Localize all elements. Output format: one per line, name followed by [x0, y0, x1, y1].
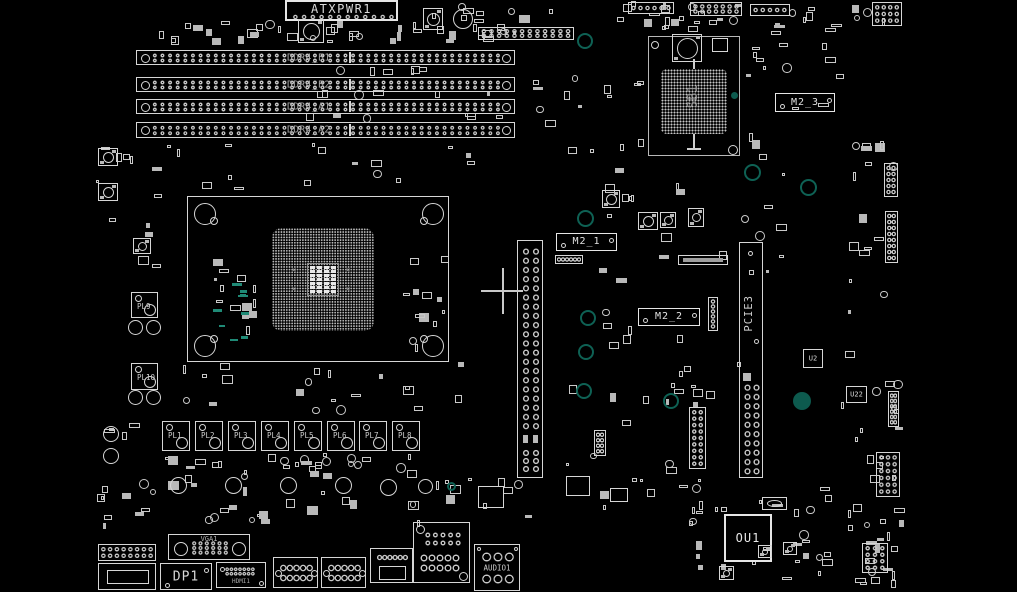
smd-component	[666, 467, 677, 474]
smd-component	[637, 81, 644, 85]
round-pad	[354, 461, 362, 469]
smd-component	[590, 149, 594, 153]
power-choke[interactable]: PL10	[131, 363, 158, 390]
pad	[437, 10, 441, 13]
smd-component	[396, 178, 401, 183]
smd-component	[177, 149, 180, 157]
smd-component	[693, 389, 703, 397]
power-choke[interactable]: PL7	[359, 421, 387, 451]
inductor[interactable]	[133, 238, 151, 254]
atx-power-connector[interactable]: ATXPWR1	[285, 0, 398, 21]
smd-component	[691, 385, 696, 388]
smd-component	[436, 481, 439, 490]
pin-header[interactable]	[872, 2, 902, 26]
power-choke[interactable]: PL1	[162, 421, 190, 451]
smd-component	[141, 508, 150, 512]
circle-pad	[827, 98, 832, 103]
smd-component	[694, 21, 700, 24]
round-inductor[interactable]	[146, 320, 161, 335]
circle-pad	[210, 217, 218, 225]
stacked-connector[interactable]	[370, 548, 413, 583]
smd-component	[315, 462, 322, 466]
smd-component	[458, 362, 464, 367]
smd-component	[746, 74, 751, 77]
inductor[interactable]	[638, 212, 658, 230]
pin-header[interactable]	[689, 407, 706, 469]
smd-component	[665, 17, 670, 26]
serial-connector[interactable]	[321, 557, 366, 588]
choke-label: PL1	[168, 432, 182, 440]
inductor[interactable]	[758, 545, 772, 558]
pad	[135, 249, 139, 252]
pin-header[interactable]	[888, 391, 899, 427]
circle-pad	[728, 145, 738, 155]
capacitor	[331, 266, 336, 269]
smd-component	[328, 370, 331, 378]
capacitor	[324, 270, 329, 273]
pin-header[interactable]	[478, 27, 574, 40]
pcie-slot-pcie3[interactable]: PCIE3	[739, 242, 763, 478]
chip-label: U22	[850, 391, 863, 398]
round-inductor[interactable]	[380, 479, 397, 496]
smd-component	[696, 511, 703, 514]
circle-pad	[754, 339, 759, 344]
smd-component	[853, 172, 856, 181]
smd-component	[209, 402, 217, 406]
capacitor	[317, 290, 322, 293]
smd-component	[891, 580, 896, 588]
smd-component	[764, 205, 773, 209]
smd-component	[145, 232, 153, 237]
circle-pad	[141, 81, 150, 90]
capacitor	[324, 290, 329, 293]
circle-pad	[359, 570, 366, 577]
pad	[640, 225, 644, 228]
mounting-hole	[800, 179, 817, 196]
round-pad	[854, 15, 860, 21]
circle-pad	[103, 152, 114, 163]
round-pad	[880, 291, 888, 299]
capacitor	[324, 282, 329, 285]
smd-component	[679, 485, 688, 488]
round-inductor[interactable]	[418, 479, 433, 494]
circle-pad	[692, 313, 697, 318]
smd-component	[880, 519, 886, 524]
smd-component	[603, 323, 612, 329]
smd-component	[782, 577, 792, 580]
pin-header[interactable]	[862, 543, 888, 573]
round-inductor[interactable]	[103, 426, 119, 442]
chip[interactable]: U2	[803, 349, 823, 368]
pad	[614, 192, 618, 195]
inductor[interactable]	[298, 19, 324, 43]
smd-component	[503, 487, 513, 494]
smd-component	[191, 483, 197, 487]
smd-component	[802, 540, 810, 543]
capacitor	[317, 282, 322, 285]
smd-component	[138, 256, 149, 265]
smd-component	[496, 115, 503, 119]
round-inductor[interactable]	[103, 448, 119, 464]
power-choke[interactable]: PL5	[294, 421, 322, 451]
capacitor	[324, 274, 329, 277]
smd-component	[753, 52, 757, 58]
inductor[interactable]	[423, 8, 443, 30]
pad	[766, 547, 770, 550]
smd-component	[566, 463, 569, 466]
component[interactable]	[712, 38, 728, 52]
pad	[100, 161, 104, 164]
pin-header[interactable]	[750, 4, 790, 16]
dimm-slot[interactable]: DDR4_B2	[136, 77, 515, 92]
lan-connector[interactable]	[413, 522, 470, 583]
pin-header[interactable]	[594, 430, 606, 456]
chip[interactable]: U22	[846, 386, 867, 403]
circle-pad	[311, 570, 318, 577]
m2-connector[interactable]: M2_1	[556, 233, 617, 251]
smd-component	[775, 23, 780, 27]
smd-component	[671, 19, 679, 26]
choke-label: PL2	[201, 432, 215, 440]
pin-header[interactable]	[885, 211, 898, 263]
capacitor	[331, 282, 336, 285]
round-inductor[interactable]	[280, 477, 297, 494]
pad	[662, 223, 666, 226]
smd-component	[825, 28, 836, 32]
component[interactable]	[478, 486, 504, 508]
round-pad	[572, 75, 578, 81]
smd-component	[891, 546, 898, 552]
smd-component	[794, 509, 799, 517]
smd-component	[152, 264, 161, 268]
pin-holes	[424, 531, 462, 547]
pin-header[interactable]	[555, 255, 583, 264]
smd-component	[871, 577, 880, 584]
smd-component	[225, 144, 232, 147]
contact-strip	[683, 258, 723, 262]
power-choke[interactable]: PL3	[228, 421, 256, 451]
smd-component	[756, 58, 764, 62]
smd-component	[370, 67, 375, 76]
capacitor	[324, 278, 329, 281]
smd-component	[533, 80, 539, 85]
component[interactable]	[566, 476, 590, 496]
smd-component	[234, 187, 244, 190]
smd-component	[250, 32, 259, 37]
pad	[425, 25, 429, 28]
smd-component	[841, 402, 844, 409]
round-inductor[interactable]	[128, 390, 143, 405]
smd-component	[283, 465, 290, 469]
choke-label: PL4	[267, 432, 281, 440]
pin-holes	[710, 299, 716, 329]
hdmi-connector[interactable]: HDMI1	[216, 562, 266, 588]
pin-header[interactable]	[98, 544, 156, 561]
circle-pad	[141, 103, 150, 112]
capacitor	[310, 286, 315, 289]
m2-connector[interactable]: M2_2	[638, 308, 700, 326]
smd-component	[887, 532, 890, 541]
smd-component	[403, 386, 414, 395]
round-pad	[852, 142, 860, 150]
smd-component	[349, 31, 359, 37]
smd-component	[709, 20, 717, 25]
circle-pad	[220, 567, 225, 572]
hdmi-label: HDMI1	[232, 579, 250, 585]
smd-component	[849, 242, 859, 251]
pad	[670, 214, 674, 217]
smd-component	[350, 500, 357, 509]
smd-component	[390, 38, 396, 44]
smd-component	[795, 560, 800, 563]
smd-component	[228, 175, 232, 180]
round-pad	[249, 517, 255, 523]
smd-component	[860, 428, 863, 433]
key-pad	[523, 435, 528, 443]
pin-holes	[100, 546, 154, 559]
pin-header[interactable]	[876, 452, 900, 497]
smd-component	[721, 507, 727, 512]
smd-component	[195, 459, 206, 465]
smd-component	[782, 173, 785, 176]
m2-connector[interactable]: M2_3	[775, 93, 835, 112]
round-pad	[872, 387, 880, 395]
smd-component	[568, 147, 577, 154]
inductor[interactable]	[98, 183, 118, 201]
round-pad	[789, 9, 796, 16]
inductor[interactable]	[783, 542, 797, 555]
key-notch	[349, 124, 351, 136]
circle-pad	[232, 542, 246, 556]
dimm-slot[interactable]: DDR4_B1	[136, 50, 515, 65]
alignment-mark: ×	[292, 267, 298, 273]
smd-component	[383, 69, 393, 75]
mounting-hole	[577, 210, 594, 227]
smd-component	[899, 520, 904, 527]
smd-component	[848, 510, 851, 518]
smd-component	[894, 508, 905, 513]
circle-pad	[396, 424, 403, 431]
dimm-label: DDR4_B2	[287, 80, 331, 90]
mounting-hole	[663, 393, 679, 409]
alignment-mark: ×	[346, 267, 352, 273]
component[interactable]	[610, 488, 628, 502]
smd-component	[599, 268, 607, 273]
smd-component	[467, 161, 475, 165]
smd-component	[413, 29, 422, 33]
round-pad	[799, 530, 809, 540]
circle-pad	[141, 126, 150, 135]
round-inductor[interactable]	[170, 477, 187, 494]
capacitor	[331, 278, 336, 281]
round-pad	[508, 8, 515, 15]
smd-component	[221, 21, 230, 25]
round-pad	[373, 170, 382, 179]
pin-holes	[481, 572, 515, 586]
capacitor	[310, 274, 315, 277]
smd-component	[715, 507, 718, 512]
smd-component	[159, 31, 164, 39]
smd-component	[333, 113, 341, 118]
power-choke[interactable]: PL4	[261, 421, 289, 451]
vga-label: VGA1	[201, 536, 218, 543]
stacked-connector[interactable]	[98, 563, 156, 590]
circle-pad	[561, 243, 566, 248]
smd-component	[408, 501, 419, 510]
m2-label: M2_1	[572, 237, 600, 247]
smd-component	[759, 154, 767, 160]
smd-component	[609, 342, 619, 349]
smd-component	[130, 156, 133, 164]
smd-component	[468, 478, 472, 481]
chip-label: OU1	[736, 532, 761, 544]
dp-connector[interactable]: DP1	[160, 563, 212, 590]
smd-component	[867, 455, 874, 464]
dimm-slot[interactable]: DDR4_A1	[136, 99, 515, 114]
round-pad	[864, 522, 870, 528]
round-inductor[interactable]	[453, 9, 473, 29]
pin-holes	[557, 257, 581, 262]
pin-header[interactable]	[690, 2, 742, 16]
smd-component	[122, 493, 131, 499]
circle-pad	[323, 570, 330, 577]
pad	[112, 185, 116, 188]
cpu-socket[interactable]: ××××	[187, 196, 449, 362]
capacitor	[317, 286, 322, 289]
mounting-hole	[731, 92, 738, 99]
pin-holes	[225, 567, 255, 576]
smd-component	[331, 399, 336, 402]
pcie3-label: PCIE3	[744, 295, 755, 332]
circle-pad	[363, 424, 370, 431]
pad	[721, 575, 725, 578]
mounting-hole	[447, 482, 456, 491]
power-choke[interactable]: PL8	[392, 421, 420, 451]
round-inductor[interactable]	[335, 477, 352, 494]
smd-component	[752, 47, 760, 50]
mounting-hole	[577, 33, 593, 49]
smd-component	[696, 541, 702, 550]
pin-header[interactable]	[708, 297, 718, 331]
pin-holes	[420, 553, 460, 573]
serial-connector[interactable]	[273, 557, 318, 588]
pin-holes	[280, 563, 313, 583]
smd-component	[407, 470, 417, 478]
smd-component	[874, 237, 884, 241]
circle-pad	[427, 13, 440, 26]
mounting-hole	[793, 392, 811, 410]
audio-connector[interactable]: AUDIO1	[474, 544, 520, 591]
power-choke[interactable]: PL2	[195, 421, 223, 451]
pad	[785, 550, 789, 553]
round-pad	[396, 463, 405, 472]
inductor[interactable]	[98, 148, 118, 166]
choke-label: PL10	[137, 374, 155, 382]
smd-component	[362, 457, 371, 462]
pad	[652, 214, 656, 217]
smd-component	[533, 87, 543, 90]
smd-component	[776, 224, 787, 231]
smd-component	[564, 91, 570, 100]
dimm-slot[interactable]: DDR4_A2	[136, 122, 515, 138]
smd-component	[304, 180, 311, 186]
inductor[interactable]	[688, 208, 704, 227]
circle-pad	[416, 525, 425, 534]
smd-component	[749, 133, 753, 142]
alignment-mark	[693, 134, 695, 148]
round-inductor[interactable]	[146, 390, 161, 405]
vga-connector[interactable]: VGA1	[168, 534, 250, 560]
round-inductor[interactable]	[128, 320, 143, 335]
smd-component	[578, 105, 582, 108]
smd-component	[706, 391, 715, 399]
inductor[interactable]	[602, 190, 620, 208]
circle-pad	[210, 335, 218, 343]
capacitor	[310, 270, 315, 273]
circle-pad	[514, 547, 518, 551]
smd-component	[717, 18, 723, 21]
choke-label: PL9	[137, 303, 151, 311]
slim-connector[interactable]	[678, 255, 728, 265]
round-inductor[interactable]	[225, 477, 242, 494]
power-choke[interactable]: PL9	[131, 292, 158, 318]
audio-label: AUDIO1	[483, 564, 510, 572]
smd-component	[831, 24, 842, 27]
key-notch	[349, 101, 351, 112]
smd-component	[256, 24, 263, 31]
smd-component	[822, 43, 827, 50]
smd-component	[102, 486, 108, 493]
smd-component	[446, 39, 454, 43]
power-choke[interactable]: PL6	[327, 421, 355, 451]
pcie-x16-slot[interactable]	[517, 240, 543, 478]
smd-component	[243, 487, 247, 496]
crystal-oscillator[interactable]	[762, 497, 787, 510]
smd-component	[310, 471, 319, 477]
smd-component	[545, 120, 556, 127]
boardview-canvas[interactable]: ATXPWR1DDR4_B1DDR4_B2DDR4_A1DDR4_A2××××P…	[0, 0, 1017, 592]
round-pad	[336, 405, 346, 415]
smd-component	[763, 66, 766, 70]
dp-label: DP1	[173, 570, 199, 583]
smd-component	[620, 144, 624, 151]
smd-component	[525, 515, 532, 518]
pin-header[interactable]	[884, 163, 898, 197]
capacitor	[331, 286, 336, 289]
inductor[interactable]	[719, 566, 734, 580]
inductor[interactable]	[672, 34, 702, 62]
pin-holes	[890, 393, 897, 425]
inductor[interactable]	[660, 212, 676, 228]
smd-component	[623, 335, 631, 344]
smd-component	[212, 462, 219, 468]
smd-component	[278, 26, 281, 33]
capacitor	[310, 278, 315, 281]
circle-pad	[303, 23, 320, 40]
round-pad	[893, 380, 902, 389]
smd-component	[342, 497, 350, 505]
pad	[300, 38, 304, 41]
pad	[696, 36, 700, 39]
smd-component	[379, 374, 383, 379]
smd-component	[259, 511, 268, 519]
pin-header[interactable]	[628, 2, 674, 14]
round-pad	[265, 20, 275, 30]
choke-label: PL3	[234, 432, 248, 440]
pin-holes	[878, 454, 898, 495]
smd-component	[103, 523, 106, 529]
smd-component	[661, 233, 672, 242]
